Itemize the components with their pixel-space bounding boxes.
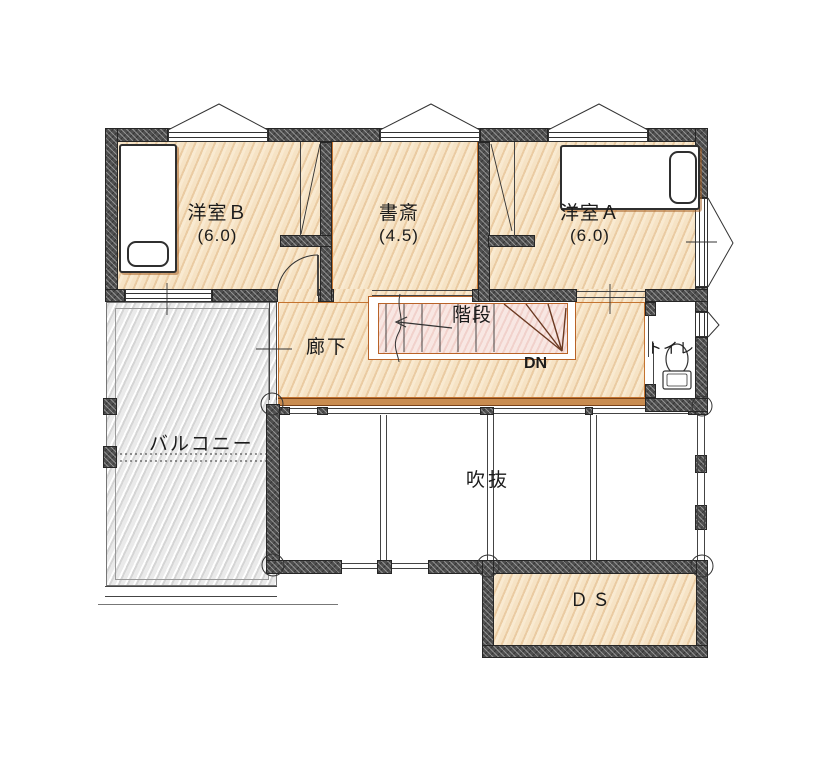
- wall-segment: [480, 128, 548, 142]
- rail-post: [585, 407, 593, 415]
- wall-segment: [645, 289, 708, 302]
- void-right-rail: [697, 415, 698, 560]
- void-divider-line: [596, 415, 597, 560]
- room-name: 洋室Ａ: [535, 203, 645, 226]
- stairs-label: 階段: [452, 305, 492, 328]
- balcony-bottom-line: [105, 586, 277, 587]
- room-study-label: 書斎 (4.5): [344, 203, 454, 246]
- void-label: 吹抜: [466, 470, 510, 493]
- balcony-left-post: [103, 446, 117, 468]
- wall-segment: [212, 289, 278, 302]
- void-bottom-wall: [428, 560, 708, 574]
- room-b-door-opening: [278, 289, 318, 302]
- study-door-opening: [334, 289, 372, 302]
- room-size: (4.5): [344, 226, 454, 246]
- balcony-bottom-line: [105, 596, 277, 597]
- balcony-hallway-sash: [276, 302, 277, 400]
- duct-space-label: ＤＳ: [570, 590, 614, 612]
- rail-post: [480, 407, 494, 415]
- window-swing-triangle: [168, 104, 268, 130]
- toilet-bottom-wall: [645, 398, 708, 412]
- void-divider-line: [590, 415, 591, 560]
- wall-segment: [105, 289, 125, 302]
- stair-top-rail: [372, 290, 472, 291]
- pillow-room-a: [669, 151, 697, 204]
- window-toilet-right: [695, 312, 708, 337]
- window-room-a-right: [695, 198, 708, 287]
- room-name: 洋室Ｂ: [160, 203, 275, 226]
- room-name: 書斎: [344, 203, 454, 226]
- balcony-label: バルコニー: [149, 434, 254, 457]
- void-bottom-window: [392, 563, 428, 564]
- rail-post: [317, 407, 328, 415]
- toilet-label: トイレ: [647, 340, 695, 358]
- toilet-left-wall: [645, 302, 656, 316]
- balcony-void-wall: [266, 404, 280, 566]
- closet-b-line: [300, 142, 301, 236]
- room-size: (6.0): [160, 226, 275, 246]
- ds-right-wall: [696, 560, 708, 658]
- void-right-rail: [704, 415, 705, 560]
- room-western-a-label: 洋室Ａ (6.0): [535, 203, 645, 246]
- wall-left-exterior: [105, 128, 118, 302]
- window-room-a-top: [548, 128, 648, 142]
- hallway-floor-edge: [278, 398, 698, 406]
- ds-bottom-wall: [482, 645, 708, 658]
- void-divider-line: [380, 415, 381, 560]
- room-a-sliding-door: [577, 297, 645, 298]
- balcony-hallway-sash: [269, 302, 270, 400]
- closet-stub-wall: [488, 235, 535, 247]
- void-bottom-wall: [266, 560, 342, 574]
- balcony-outer-contour: [98, 604, 338, 605]
- stair-top-rail: [372, 295, 472, 296]
- void-bottom-window: [342, 563, 377, 564]
- window-study-top: [380, 128, 480, 142]
- floor-plan-canvas: 洋室Ｂ (6.0) 書斎 (4.5) 洋室Ａ (6.0) 廊下 階段 DN トイ…: [0, 0, 839, 759]
- room-size: (6.0): [535, 226, 645, 246]
- wall-divider-study-a: [478, 142, 490, 302]
- void-bottom-window: [342, 568, 377, 569]
- void-bottom-post: [377, 560, 392, 574]
- void-divider-line: [386, 415, 387, 560]
- window-swing-triangle: [708, 198, 733, 287]
- balcony-left-post: [103, 398, 117, 415]
- window-room-b-top: [168, 128, 268, 142]
- window-room-b-balcony: [125, 289, 212, 302]
- window-swing-triangle: [380, 104, 480, 130]
- wall-divider-b-study: [320, 142, 332, 302]
- void-bottom-window: [392, 568, 428, 569]
- window-swing-triangle: [708, 312, 719, 337]
- toilet-left-wall: [645, 384, 656, 398]
- room-western-b-label: 洋室Ｂ (6.0): [160, 203, 275, 246]
- hallway-label: 廊下: [306, 337, 348, 360]
- wall-segment: [268, 128, 380, 142]
- window-swing-triangle: [548, 104, 648, 130]
- stairs-dn-label: DN: [524, 354, 547, 373]
- closet-a-line: [514, 142, 515, 236]
- ds-left-wall: [482, 560, 494, 658]
- closet-stub-wall: [280, 235, 332, 247]
- room-a-sliding-door: [577, 291, 645, 292]
